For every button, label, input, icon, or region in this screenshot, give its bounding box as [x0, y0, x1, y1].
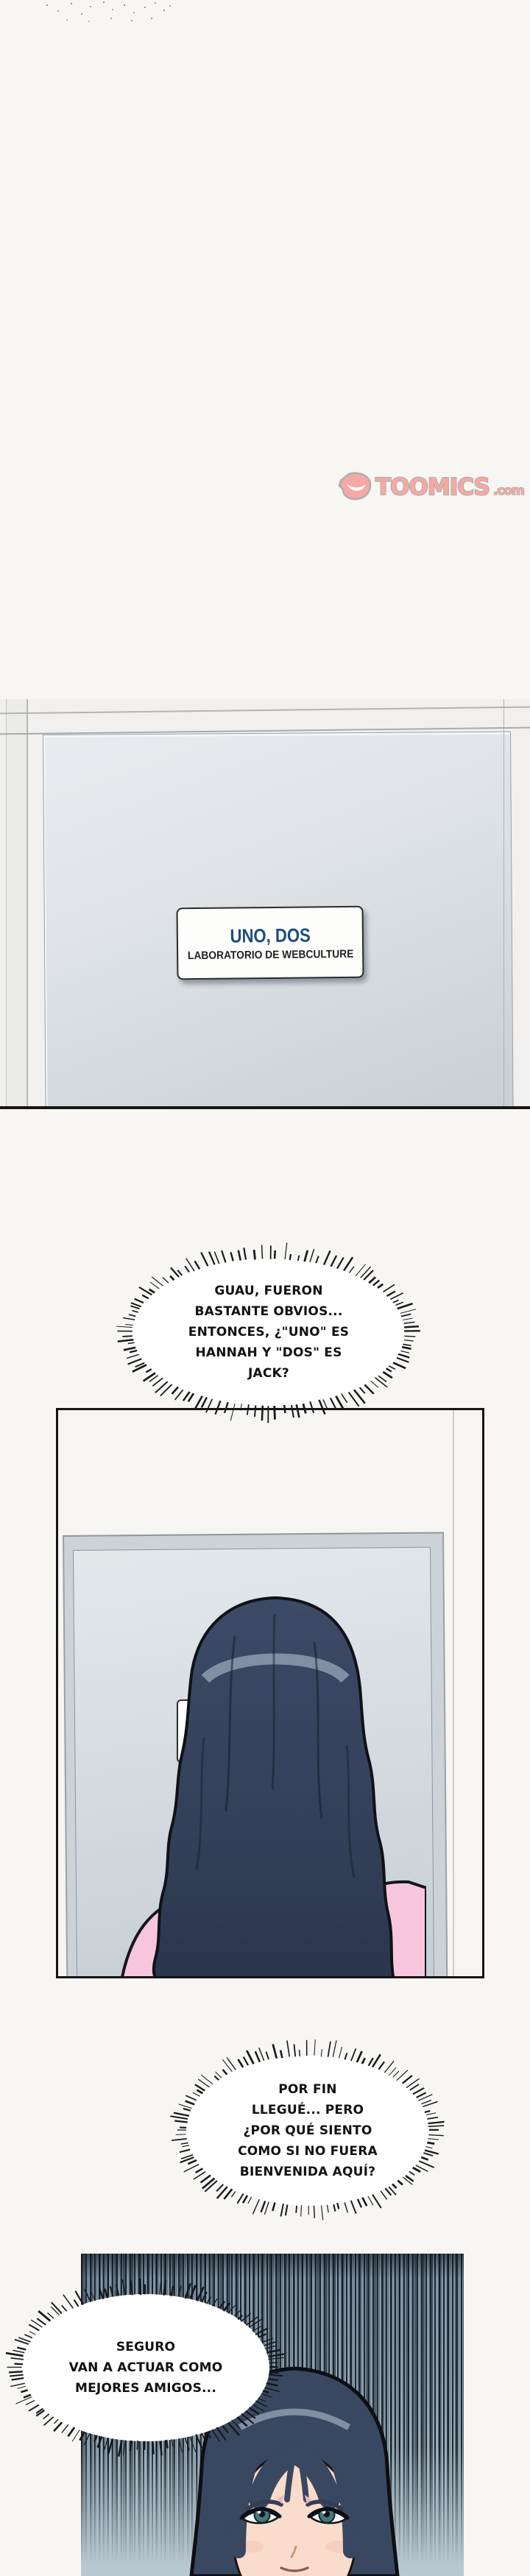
bubble-line: GUAU, FUERON: [214, 1281, 322, 1301]
bubble-line: ¿POR QUÉ SIENTO: [243, 2120, 372, 2141]
bubble-text: GUAU, FUERON BASTANTE OBVIOS... ENTONCES…: [113, 1239, 424, 1425]
bubble-text: POR FIN LLEGUÉ... PERO ¿POR QUÉ SIENTO C…: [167, 2037, 448, 2225]
panel-hallway: LABO: [56, 1408, 484, 1978]
door-name-plate: UNO, DOS LABORATORIO DE WEBCULTURE: [176, 906, 364, 980]
door-edge-line: [504, 699, 504, 1109]
panel-bottom-border: [0, 1106, 530, 1109]
toomics-devil-icon: [339, 472, 372, 503]
thought-bubble-3: SEGURO VAN A ACTUAR COMO MEJORES AMIGOS.…: [3, 2275, 289, 2460]
bubble-text: SEGURO VAN A ACTUAR COMO MEJORES AMIGOS.…: [3, 2275, 289, 2460]
bubble-line: POR FIN: [278, 2079, 337, 2100]
woman-back-figure: [117, 1590, 426, 1978]
door-frame-line: [0, 706, 530, 714]
comic-page: { "page": {"kind": "webtoon episode page…: [0, 0, 530, 2576]
bubble-line: COMO SI NO FUERA: [238, 2141, 378, 2162]
panel-door-closeup: [0, 699, 530, 1109]
toomics-watermark: TOOMICS .com: [339, 470, 524, 505]
toomics-wordmark: TOOMICS: [375, 474, 490, 500]
bubble-line: SEGURO: [116, 2337, 175, 2357]
bubble-line: LLEGUÉ... PERO: [252, 2100, 364, 2120]
bubble-line: ENTONCES, ¿"UNO" ES: [188, 1322, 349, 1342]
door-edge-line: [26, 699, 28, 1109]
bubble-line: VAN A ACTUAR COMO: [69, 2357, 223, 2378]
bubble-line: MEJORES AMIGOS...: [75, 2378, 216, 2399]
door-sign-title: UNO, DOS: [230, 924, 311, 947]
bubble-line: BIENVENIDA AQUÍ?: [240, 2162, 375, 2182]
door-stile: [7, 699, 26, 1109]
toomics-suffix: .com: [493, 484, 524, 498]
thought-bubble-1: GUAU, FUERON BASTANTE OBVIOS... ENTONCES…: [113, 1239, 424, 1425]
bubble-line: HANNAH Y "DOS" ES: [195, 1342, 342, 1363]
door-edge-line: [6, 699, 7, 1109]
ink-speckles: [0, 0, 1, 1]
wall-corner-line: [453, 1410, 454, 1976]
thought-bubble-2: POR FIN LLEGUÉ... PERO ¿POR QUÉ SIENTO C…: [167, 2037, 448, 2225]
bubble-line: JACK?: [248, 1363, 289, 1384]
bubble-line: BASTANTE OBVIOS...: [194, 1301, 342, 1322]
door-sign-subtitle: LABORATORIO DE WEBCULTURE: [187, 948, 353, 962]
